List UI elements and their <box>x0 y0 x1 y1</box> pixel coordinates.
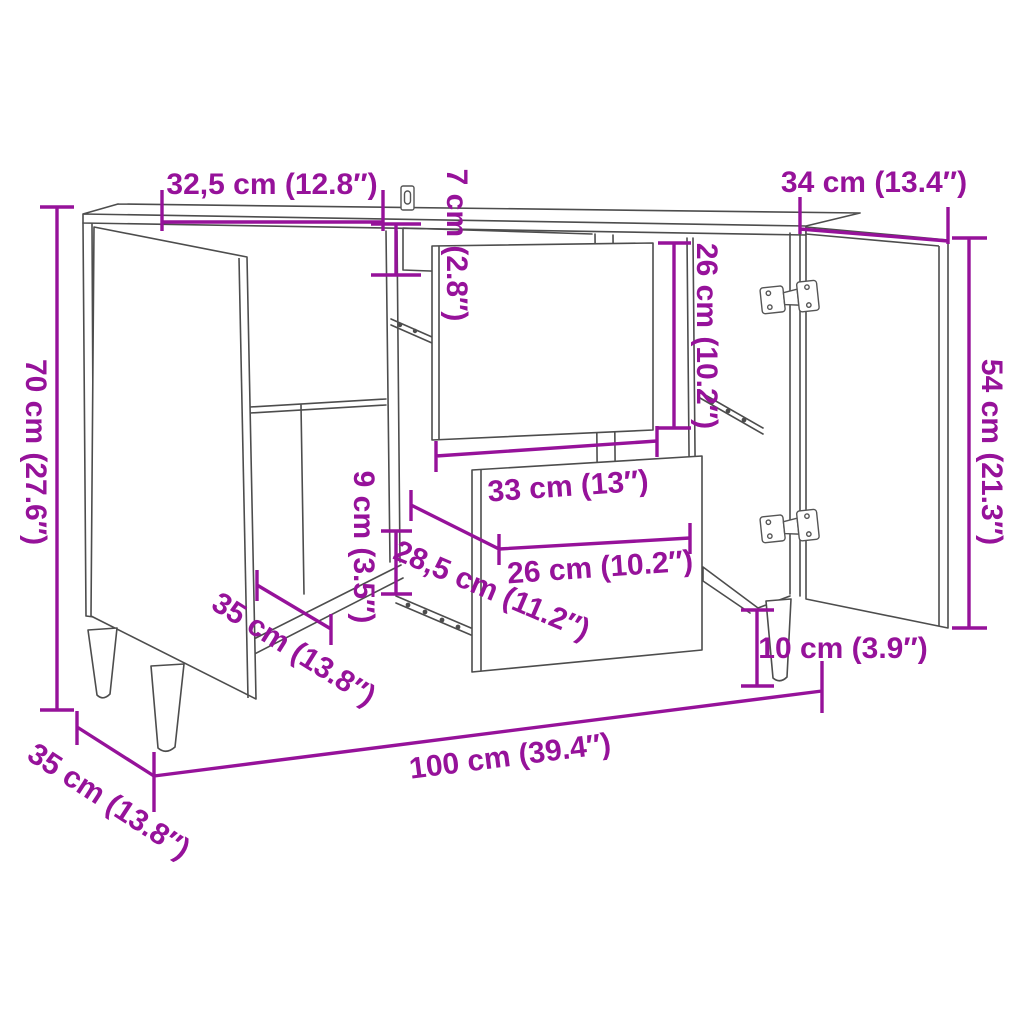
right-door-open <box>806 227 948 628</box>
label-top-drawer-height: 7 cm (2.8″) <box>440 169 473 322</box>
sideboard-diagram-svg: 32,5 cm (12.8″) 7 cm (2.8″) 34 cm (13.4″… <box>0 0 1024 1024</box>
dimension-diagram: 32,5 cm (12.8″) 7 cm (2.8″) 34 cm (13.4″… <box>0 0 1024 1024</box>
label-door-width: 34 cm (13.4″) <box>781 166 967 199</box>
left-partition <box>386 231 400 562</box>
dim-line-overall-depth <box>77 711 154 776</box>
label-overall-height: 70 cm (27.6″) <box>19 359 52 545</box>
dim-line-drawer-front-height <box>658 243 691 428</box>
leg-front-left <box>151 664 184 751</box>
back-panel-seam <box>301 405 304 594</box>
label-overall-width: 100 cm (39.4″) <box>407 727 612 786</box>
wall-bracket-icon <box>401 186 414 210</box>
label-door-height: 54 cm (21.3″) <box>975 359 1008 545</box>
label-leg-height: 10 cm (3.9″) <box>758 632 927 665</box>
label-top-section-width: 32,5 cm (12.8″) <box>166 168 377 201</box>
label-overall-depth: 35 cm (13.8″) <box>22 737 196 866</box>
leg-back-left <box>88 628 117 698</box>
label-drawer-box-height: 9 cm (3.5″) <box>347 471 380 624</box>
label-drawer-front-height: 26 cm (10.2″) <box>690 243 723 429</box>
drawer-slide-lower <box>396 596 471 635</box>
shelf-edge <box>250 399 386 413</box>
dim-line-top-drawer-height <box>371 224 421 275</box>
